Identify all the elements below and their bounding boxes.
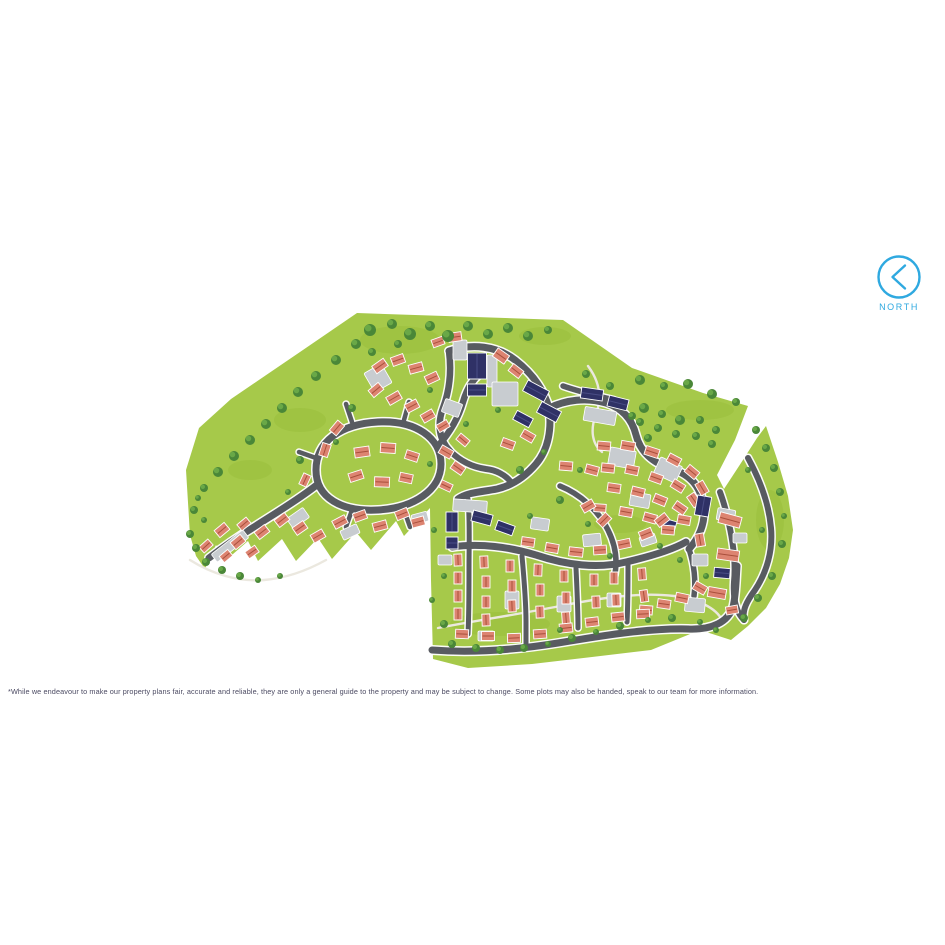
tree-icon xyxy=(190,506,198,514)
tree-icon xyxy=(703,573,709,579)
house-plot[interactable] xyxy=(455,629,468,639)
tree-highlight xyxy=(769,573,773,577)
tree-highlight xyxy=(645,617,648,620)
tree-icon xyxy=(427,461,433,467)
tree-icon xyxy=(333,439,339,445)
tree-icon xyxy=(427,387,433,393)
tree-highlight xyxy=(629,413,633,417)
tree-highlight xyxy=(429,597,432,600)
tree-icon xyxy=(200,484,208,492)
house-plot[interactable] xyxy=(374,477,389,488)
tree-icon xyxy=(556,496,564,504)
house-plot[interactable] xyxy=(569,547,584,557)
tree-highlight xyxy=(745,467,748,470)
tree-icon xyxy=(544,326,552,334)
tree-highlight xyxy=(484,330,490,336)
house-plot[interactable] xyxy=(594,504,607,513)
driveway xyxy=(530,517,549,531)
house-plot[interactable] xyxy=(508,600,516,612)
tree-highlight xyxy=(277,573,280,576)
house-plot[interactable] xyxy=(507,633,520,642)
tree-highlight xyxy=(193,545,197,549)
house-plot[interactable] xyxy=(607,483,621,494)
house-plot[interactable] xyxy=(536,606,544,618)
tree-icon xyxy=(568,634,576,642)
tree-icon xyxy=(657,543,663,549)
tree-icon xyxy=(636,418,644,426)
tree-icon xyxy=(503,323,513,333)
tree-icon xyxy=(675,415,685,425)
tree-highlight xyxy=(214,468,220,474)
tree-icon xyxy=(261,419,271,429)
tree-icon xyxy=(218,566,226,574)
house-plot[interactable] xyxy=(661,525,675,535)
tree-highlight xyxy=(708,390,714,396)
tree-icon xyxy=(668,614,676,622)
roof-ridge xyxy=(642,569,643,579)
road xyxy=(627,562,628,622)
house-plot[interactable] xyxy=(585,617,599,628)
tree-highlight xyxy=(577,467,580,470)
tree-highlight xyxy=(669,615,673,619)
tree-icon xyxy=(677,557,683,563)
tree-highlight xyxy=(497,647,501,651)
tree-highlight xyxy=(441,573,444,576)
tree-highlight xyxy=(495,407,498,410)
driveway xyxy=(453,499,488,513)
tree-icon xyxy=(442,330,454,342)
tree-highlight xyxy=(426,322,432,328)
driveway xyxy=(692,554,708,566)
tree-highlight xyxy=(441,621,445,625)
tree-icon xyxy=(778,540,786,548)
tree-highlight xyxy=(294,388,300,394)
house-plot[interactable] xyxy=(601,463,615,473)
tree-icon xyxy=(593,629,599,635)
tree-highlight xyxy=(645,435,649,439)
house-plot[interactable] xyxy=(454,590,462,602)
tree-highlight xyxy=(607,553,610,556)
tree-highlight xyxy=(759,527,762,530)
tree-icon xyxy=(672,430,680,438)
tree-highlight xyxy=(427,387,430,390)
tree-icon xyxy=(440,620,448,628)
tree-highlight xyxy=(219,567,223,571)
tree-highlight xyxy=(659,411,663,415)
driveway xyxy=(733,533,747,543)
tree-highlight xyxy=(779,541,783,545)
house-plot[interactable] xyxy=(534,564,542,576)
tree-icon xyxy=(441,573,447,579)
house-plot-navy[interactable] xyxy=(468,384,487,396)
tree-highlight xyxy=(753,427,757,431)
tree-highlight xyxy=(640,404,646,410)
tree-icon xyxy=(404,328,416,340)
tree-icon xyxy=(770,464,778,472)
north-control[interactable]: NORTH xyxy=(875,253,923,312)
tree-highlight xyxy=(201,517,204,520)
tree-highlight xyxy=(203,559,207,563)
tree-icon xyxy=(776,488,784,496)
tree-highlight xyxy=(349,405,353,409)
tree-highlight xyxy=(693,433,697,437)
tree-icon xyxy=(644,434,652,442)
grass-patch xyxy=(228,460,272,480)
house-plot[interactable] xyxy=(639,590,649,603)
tree-highlight xyxy=(684,380,690,386)
driveway xyxy=(453,340,467,360)
tree-highlight xyxy=(285,489,288,492)
tree-highlight xyxy=(449,641,453,645)
tree-icon xyxy=(781,513,787,519)
house-plot-navy[interactable] xyxy=(446,512,458,532)
tree-highlight xyxy=(755,595,759,599)
house-plot-navy[interactable] xyxy=(714,567,731,578)
house-plot[interactable] xyxy=(482,632,495,641)
tree-highlight xyxy=(697,417,701,421)
tree-highlight xyxy=(201,485,205,489)
tree-icon xyxy=(696,416,704,424)
tree-highlight xyxy=(763,445,767,449)
tree-icon xyxy=(660,382,668,390)
house-plot[interactable] xyxy=(612,594,620,606)
tree-icon xyxy=(245,435,255,445)
tree-highlight xyxy=(333,439,336,442)
tree-highlight xyxy=(713,427,717,431)
tree-icon xyxy=(255,577,261,583)
north-chevron-icon[interactable] xyxy=(875,253,923,301)
tree-highlight xyxy=(733,399,737,403)
tree-highlight xyxy=(655,425,659,429)
tree-icon xyxy=(293,387,303,397)
tree-highlight xyxy=(697,619,700,622)
tree-icon xyxy=(431,527,437,533)
tree-icon xyxy=(708,440,716,448)
tree-highlight xyxy=(427,461,430,464)
tree-highlight xyxy=(781,513,784,516)
tree-icon xyxy=(429,597,435,603)
driveway xyxy=(492,382,518,406)
tree-highlight xyxy=(585,521,588,524)
house-plot-navy[interactable] xyxy=(468,353,487,379)
tree-icon xyxy=(740,614,748,622)
tree-icon xyxy=(277,403,287,413)
house-plot[interactable] xyxy=(559,461,573,471)
tree-icon xyxy=(277,573,283,579)
tree-icon xyxy=(759,527,765,533)
tree-highlight xyxy=(517,467,521,471)
tree-highlight xyxy=(431,527,434,530)
tree-icon xyxy=(351,339,361,349)
house-plot[interactable] xyxy=(454,554,462,566)
tree-icon xyxy=(752,426,760,434)
house-plot[interactable] xyxy=(354,446,370,458)
tree-highlight xyxy=(187,531,191,535)
tree-highlight xyxy=(332,356,338,362)
tree-icon xyxy=(628,412,636,420)
tree-icon xyxy=(713,627,719,633)
tree-icon xyxy=(463,321,473,331)
tree-highlight xyxy=(365,325,372,332)
tree-icon xyxy=(645,617,651,623)
tree-highlight xyxy=(771,465,775,469)
roof-ridge xyxy=(457,634,468,635)
tree-highlight xyxy=(246,436,252,442)
tree-icon xyxy=(311,371,321,381)
tree-icon xyxy=(582,370,590,378)
tree-icon xyxy=(331,355,341,365)
tree-icon xyxy=(496,646,504,654)
house-plot[interactable] xyxy=(562,612,571,625)
tree-icon xyxy=(541,449,547,455)
house-plot[interactable] xyxy=(380,442,396,453)
tree-icon xyxy=(368,348,376,356)
tree-highlight xyxy=(463,421,466,424)
tree-icon xyxy=(448,640,456,648)
tree-highlight xyxy=(703,573,706,576)
tree-highlight xyxy=(657,543,660,546)
house-plot[interactable] xyxy=(597,441,611,451)
tree-highlight xyxy=(741,615,745,619)
tree-icon xyxy=(768,572,776,580)
house-plot[interactable] xyxy=(454,572,462,584)
tree-highlight xyxy=(230,452,236,458)
roof-ridge xyxy=(595,508,605,509)
house-plot[interactable] xyxy=(694,533,705,547)
tree-highlight xyxy=(661,383,665,387)
tree-icon xyxy=(654,424,662,432)
house-plot[interactable] xyxy=(508,580,516,592)
tree-icon xyxy=(296,456,304,464)
tree-icon xyxy=(745,467,751,473)
tree-icon xyxy=(364,324,376,336)
disclaimer-text: *While we endeavour to make our property… xyxy=(8,687,758,696)
house-plot[interactable] xyxy=(480,556,488,568)
tree-highlight xyxy=(637,419,641,423)
tree-highlight xyxy=(237,573,241,577)
tree-highlight xyxy=(676,416,682,422)
house-plot[interactable] xyxy=(482,596,490,608)
tree-highlight xyxy=(195,495,198,498)
tree-icon xyxy=(527,513,533,519)
tree-icon xyxy=(545,641,551,647)
tree-highlight xyxy=(777,489,781,493)
tree-highlight xyxy=(583,371,587,375)
tree-icon xyxy=(186,530,194,538)
house-plot[interactable] xyxy=(677,514,691,525)
tree-highlight xyxy=(443,331,450,338)
tree-highlight xyxy=(388,320,394,326)
tree-icon xyxy=(616,622,624,630)
tree-icon xyxy=(557,627,563,633)
house-plot[interactable] xyxy=(521,537,535,548)
tree-highlight xyxy=(524,332,530,338)
tree-highlight xyxy=(569,635,573,639)
tree-highlight xyxy=(545,641,548,644)
tree-icon xyxy=(607,553,613,559)
tree-icon xyxy=(585,521,591,527)
tree-icon xyxy=(195,495,201,501)
tree-icon xyxy=(285,489,291,495)
road xyxy=(468,499,469,634)
road xyxy=(576,568,578,628)
tree-highlight xyxy=(545,327,549,331)
tree-highlight xyxy=(607,383,611,387)
tree-highlight xyxy=(191,507,195,511)
house-plot[interactable] xyxy=(725,605,738,615)
tree-icon xyxy=(523,331,533,341)
house-plot[interactable] xyxy=(545,542,559,553)
tree-highlight xyxy=(297,457,301,461)
tree-highlight xyxy=(709,441,713,445)
north-label: NORTH xyxy=(875,302,923,312)
house-plot[interactable] xyxy=(482,614,490,626)
house-plot[interactable] xyxy=(454,608,462,620)
tree-icon xyxy=(394,340,402,348)
site-plan-map[interactable] xyxy=(0,0,945,945)
tree-highlight xyxy=(636,376,642,382)
house-plot[interactable] xyxy=(560,570,568,582)
roof-ridge xyxy=(638,614,649,615)
tree-icon xyxy=(520,644,528,652)
tree-icon xyxy=(387,319,397,329)
tree-icon xyxy=(697,619,703,625)
tree-highlight xyxy=(673,431,677,435)
tree-icon xyxy=(192,544,200,552)
house-plot[interactable] xyxy=(592,596,600,608)
tree-icon xyxy=(606,382,614,390)
house-plot[interactable] xyxy=(610,572,618,584)
house-plot[interactable] xyxy=(506,560,514,572)
tree-icon xyxy=(425,321,435,331)
driveway xyxy=(438,555,452,565)
tree-highlight xyxy=(255,577,258,580)
tree-highlight xyxy=(677,557,680,560)
tree-highlight xyxy=(352,340,358,346)
tree-icon xyxy=(229,451,239,461)
tree-highlight xyxy=(278,404,284,410)
house-plot[interactable] xyxy=(562,592,570,604)
tree-icon xyxy=(463,421,469,427)
tree-highlight xyxy=(464,322,470,328)
tree-highlight xyxy=(262,420,268,426)
house-plot[interactable] xyxy=(611,612,625,622)
house-plot[interactable] xyxy=(620,440,635,451)
house-plot-navy[interactable] xyxy=(446,537,458,549)
house-plot[interactable] xyxy=(593,545,607,555)
tree-icon xyxy=(201,517,207,523)
tree-icon xyxy=(712,426,720,434)
house-plot[interactable] xyxy=(619,506,633,517)
tree-icon xyxy=(639,403,649,413)
tree-icon xyxy=(213,467,223,477)
tree-highlight xyxy=(473,645,477,649)
tree-highlight xyxy=(713,627,716,630)
tree-icon xyxy=(348,404,356,412)
tree-icon xyxy=(658,410,666,418)
tree-icon xyxy=(483,329,493,339)
tree-highlight xyxy=(312,372,318,378)
tree-highlight xyxy=(395,341,399,345)
tree-icon xyxy=(762,444,770,452)
tree-icon xyxy=(683,379,693,389)
house-plot[interactable] xyxy=(482,576,490,588)
tree-icon xyxy=(635,375,645,385)
tree-icon xyxy=(472,644,480,652)
driveway xyxy=(582,533,601,547)
tree-highlight xyxy=(541,449,544,452)
tree-highlight xyxy=(405,329,412,336)
tree-highlight xyxy=(557,627,560,630)
roof-ridge xyxy=(566,613,567,623)
house-plot[interactable] xyxy=(638,568,647,581)
house-plot[interactable] xyxy=(536,584,544,596)
house-plot[interactable] xyxy=(657,599,671,610)
tree-highlight xyxy=(557,497,561,501)
tree-icon xyxy=(577,467,583,473)
house-plot[interactable] xyxy=(590,574,598,586)
page: NORTH *While we endeavour to make our pr… xyxy=(0,0,945,945)
tree-highlight xyxy=(504,324,510,330)
tree-highlight xyxy=(527,513,530,516)
tree-highlight xyxy=(593,629,596,632)
tree-icon xyxy=(202,558,210,566)
tree-highlight xyxy=(617,623,621,627)
tree-icon xyxy=(516,466,524,474)
tree-icon xyxy=(495,407,501,413)
tree-icon xyxy=(692,432,700,440)
tree-icon xyxy=(732,398,740,406)
tree-icon xyxy=(707,389,717,399)
house-plot[interactable] xyxy=(533,629,547,639)
house-plot-navy[interactable] xyxy=(694,495,711,517)
tree-highlight xyxy=(521,645,525,649)
tree-highlight xyxy=(369,349,373,353)
tree-icon xyxy=(236,572,244,580)
tree-icon xyxy=(754,594,762,602)
